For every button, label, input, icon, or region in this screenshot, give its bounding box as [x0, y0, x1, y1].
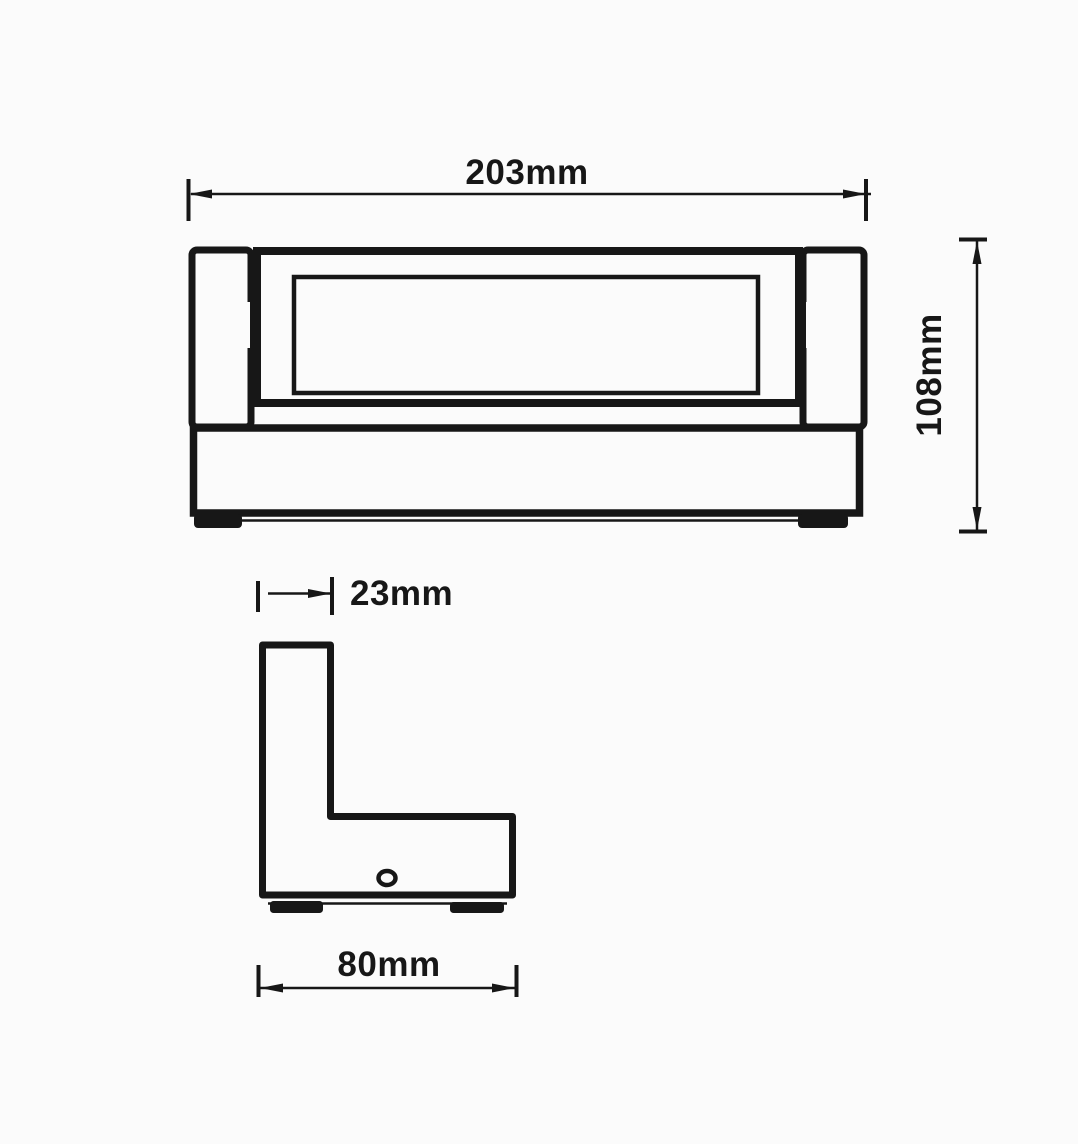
- side-arm-width-dimension: 23mm: [258, 574, 453, 615]
- lamp-diffuser-window: [294, 277, 758, 393]
- side-foot-right: [450, 902, 504, 913]
- bracket-notch-left: [244, 302, 250, 348]
- dimension-drawing-page: 203mm 108mm: [0, 0, 1078, 1144]
- l-profile-outline: [263, 645, 513, 895]
- front-view-body: [192, 250, 864, 528]
- base-foot-left: [194, 514, 242, 528]
- side-view-body: [263, 645, 513, 913]
- arrow-up-icon: [973, 241, 982, 264]
- arrow-right-icon: [308, 589, 331, 598]
- front-view: 203mm 108mm: [189, 153, 988, 532]
- mounting-bracket-right: [803, 250, 864, 427]
- lamp-panel-frame: [257, 251, 799, 403]
- front-height-label: 108mm: [910, 313, 949, 436]
- base-foot-right: [798, 514, 848, 528]
- side-view: 23mm 80mm: [258, 574, 517, 997]
- arrow-left-icon: [260, 984, 283, 993]
- technical-drawing-canvas: 203mm 108mm: [0, 0, 1078, 1144]
- bracket-notch-right: [806, 302, 812, 348]
- front-width-label: 203mm: [465, 153, 588, 192]
- arrow-right-icon: [492, 984, 515, 993]
- front-width-dimension: 203mm: [189, 153, 872, 221]
- base-housing: [194, 428, 860, 513]
- arrow-down-icon: [973, 507, 982, 530]
- side-arm-width-label: 23mm: [350, 574, 453, 613]
- arrow-right-icon: [843, 190, 866, 199]
- mounting-bracket-left: [192, 250, 251, 427]
- front-height-dimension: 108mm: [910, 240, 987, 532]
- side-foot-left: [270, 901, 323, 913]
- mounting-hole: [379, 871, 396, 885]
- side-depth-label: 80mm: [337, 945, 440, 984]
- side-depth-dimension: 80mm: [259, 945, 517, 997]
- arrow-left-icon: [189, 190, 212, 199]
